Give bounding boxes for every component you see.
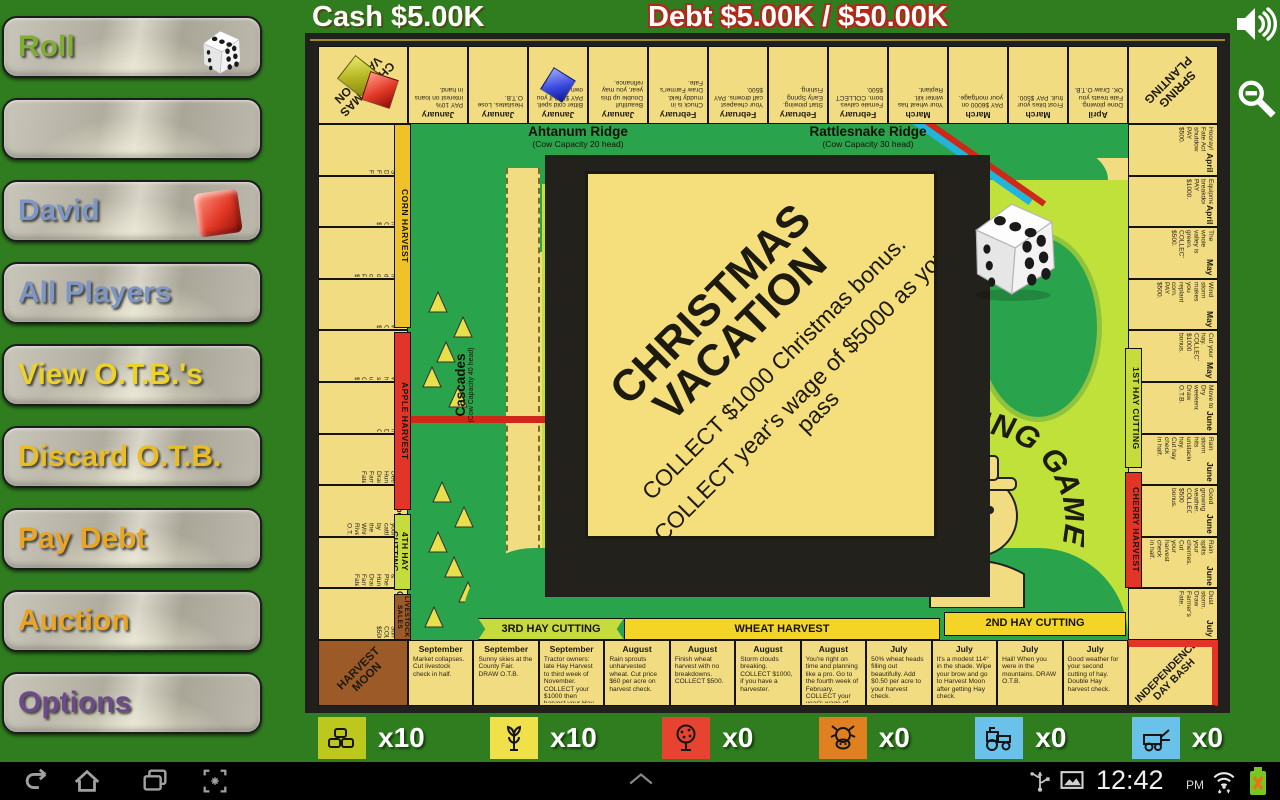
cow-icon: [819, 717, 867, 759]
view-otbs-button-label: View O.T.B.'s: [18, 358, 203, 392]
all-players-button[interactable]: All Players: [2, 262, 262, 324]
fruit-tree-icon: [662, 717, 710, 759]
square-month: May: [1130, 258, 1216, 277]
square-month: September: [411, 643, 470, 655]
board-square: AugustStorm clouds breaking. COLLECT $10…: [735, 640, 800, 706]
hide-bar-chevron[interactable]: [626, 770, 656, 800]
square-desc: Your wheat has winter kill. Replant.: [891, 49, 945, 109]
square-desc: Finish wheat harvest with no breakdowns.…: [673, 655, 732, 703]
square-content: FebruaryFemale calves born. COLLECT $500…: [831, 49, 885, 121]
discard-otb-button-label: Discard O.T.B.: [18, 440, 221, 474]
david-button[interactable]: David: [2, 180, 262, 242]
board-square: JulyGood weather for your second cutting…: [1063, 640, 1128, 706]
counter-count: x0: [879, 722, 910, 754]
square-desc: Move to Dry weekend. Draw O.T.B.: [1130, 384, 1216, 410]
square-desc: You're right on time and planning like a…: [804, 655, 863, 703]
square-month: August: [673, 643, 732, 655]
square-content: FebruaryChuck is in muddy field. Draw Fa…: [651, 49, 705, 121]
square-month: May: [1130, 310, 1216, 329]
2nd-hay-cutting-banner: 2ND HAY CUTTING: [944, 612, 1126, 636]
clock-ampm: PM: [1186, 778, 1204, 792]
square-content: AugustRain sprouts unharvested wheat. Cu…: [607, 643, 666, 703]
view-otbs-button[interactable]: View O.T.B.'s: [2, 344, 262, 406]
square-content: SeptemberSunny skies at the County Fair.…: [476, 643, 535, 703]
square-desc: Hooray! Fate Act shutdown. PAY $500.: [1130, 126, 1216, 152]
square-month: September: [542, 643, 601, 655]
pay-debt-button[interactable]: Pay Debt: [2, 508, 262, 570]
square-content: FebruaryStart plowing. Early Spring Fish…: [771, 49, 825, 121]
square-desc: Storm clouds breaking. COLLECT $1000, if…: [738, 655, 797, 703]
square-content: Rain splits your cherries. Cut your harv…: [1130, 539, 1216, 587]
board-square: JulyHail! When you were in the mountains…: [997, 640, 1062, 706]
hay-bales-icon: [318, 717, 366, 759]
square-content: JulyGood weather for your second cutting…: [1066, 643, 1125, 703]
rolled-die: [948, 183, 1066, 301]
corner-christmas-vacation: CHRISTMASVACATION: [318, 46, 408, 124]
square-month: January: [411, 109, 465, 121]
square-content: MarchFrost bites your fruit. PAY $500.: [1011, 49, 1065, 121]
square-month: June: [1130, 565, 1216, 587]
red-player-piece-icon: [193, 188, 243, 238]
home-button[interactable]: [72, 766, 102, 796]
square-content: FebruaryYour cheapest calf drowns. PAY $…: [711, 49, 765, 121]
square-desc: PAY $6000 on your mortgage.: [951, 49, 1005, 109]
square-desc: Hesitates. Lose O.T.B.: [471, 49, 525, 109]
square-desc: Female calves born. COLLECT $500.: [831, 49, 885, 109]
square-content: Hooray! Fate Act shutdown. PAY $500.Apri…: [1130, 126, 1216, 174]
square-content: JanuaryBeautiful! Double up this year, y…: [591, 49, 645, 121]
corner-harvest-moon: HARVEST MOON: [318, 640, 408, 706]
commodity-counter: x0: [662, 717, 753, 759]
square-content: AprilDone plowing. Fate treats you OK. D…: [1071, 49, 1125, 121]
square-desc: Sunny skies at the County Fair. DRAW O.T…: [476, 655, 535, 703]
square-desc: Chuck is in muddy field. Draw Farmer's F…: [651, 49, 705, 109]
square-month: February: [651, 109, 705, 121]
commodity-counter: x0: [1132, 717, 1223, 759]
square-content: AugustYou're right on time and planning …: [804, 643, 863, 703]
board-square: Equipment breakdown. PAY $1000.April: [1128, 176, 1218, 228]
debt-label: Debt $5.00K / $50.00K: [648, 1, 948, 34]
commodity-counter: x10: [490, 717, 597, 759]
cherry-harvest-banner: CHERRY HARVEST: [1125, 472, 1142, 588]
square-month: January: [471, 109, 525, 121]
board-square: MarchYour wheat has winter kill. Replant…: [888, 46, 948, 124]
square-content: Dust storm. Draw Farmer's Fate.July: [1130, 590, 1216, 638]
counter-count: x0: [722, 722, 753, 754]
square-month: May: [1130, 361, 1216, 380]
square-month: July: [935, 643, 994, 655]
square-content: Wind storm makes you replant corn. PAY $…: [1130, 281, 1216, 329]
3rd-hay-cutting-banner: 3RD HAY CUTTING: [478, 618, 624, 640]
corner-independence-day-bash: INDEPENDENCEDAY BASH: [1128, 640, 1218, 706]
board-square: FebruaryFemale calves born. COLLECT $500…: [828, 46, 888, 124]
square-desc: Market collapses. Cut livestock check in…: [411, 655, 470, 703]
square-desc: Rain storm hits unstacked hay. Cut hay c…: [1130, 436, 1216, 462]
board-square: AugustYou're right on time and planning …: [801, 640, 866, 706]
square-content: SeptemberTractor owners: late Hay Harves…: [542, 643, 601, 703]
square-month: January: [531, 109, 585, 121]
square-content: Equipment breakdown. PAY $1000.April: [1130, 178, 1216, 226]
apple-harvest-banner: APPLE HARVEST: [394, 332, 411, 510]
tractor-icon: [975, 717, 1023, 759]
board-square: MarchPAY $6000 on your mortgage.: [948, 46, 1008, 124]
board-square: FebruaryYour cheapest calf drowns. PAY $…: [708, 46, 768, 124]
square-desc: Good growing weather. COLLECT $500 bonus…: [1130, 487, 1216, 513]
square-desc: Frost bites your fruit. PAY $500.: [1011, 49, 1065, 109]
board-square: SeptemberTractor owners: late Hay Harves…: [539, 640, 604, 706]
square-content: JulyHail! When you were in the mountains…: [1000, 643, 1059, 703]
square-month: February: [771, 109, 825, 121]
corn-harvest-banner: CORN HARVEST: [394, 124, 411, 328]
square-desc: Hail! When you were in the mountains. DR…: [1000, 655, 1059, 703]
square-content: MarchPAY $6000 on your mortgage.: [951, 49, 1005, 121]
commodity-counter: x0: [819, 717, 910, 759]
rattlesnake-ridge-label: Rattlesnake Ridge (Cow Capacity 30 head): [748, 124, 988, 149]
dice-icon: [190, 21, 246, 77]
pay-debt-button-label: Pay Debt: [18, 522, 146, 556]
commodity-counter-bar: x10x10x0x0x0x0: [318, 715, 1223, 760]
cash-label: Cash $5.00K: [312, 1, 485, 34]
board-square: AugustRain sprouts unharvested wheat. Cu…: [604, 640, 669, 706]
4th-hay-cutting-banner: 4TH HAY CUTTING: [394, 514, 411, 590]
square-month: September: [476, 643, 535, 655]
1st-hay-cutting-banner: 1ST HAY CUTTING: [1125, 348, 1142, 468]
clock: 12:42: [1096, 765, 1164, 796]
square-month: February: [711, 109, 765, 121]
square-content: Cut your hay. COLLECT $1000 bonus.May: [1130, 332, 1216, 380]
screenshot-button[interactable]: [200, 766, 230, 796]
square-month: July: [1000, 643, 1059, 655]
board-square: JanuaryBitter cold spell. PAY $500 if yo…: [528, 46, 588, 124]
square-month: July: [1130, 619, 1216, 638]
square-month: March: [951, 109, 1005, 121]
corner-spring-planting: SPRINGPLANTING: [1128, 46, 1218, 124]
android-navbar: 12:42 PM: [0, 762, 1280, 800]
square-month: April: [1130, 204, 1216, 225]
square-content: AugustFinish wheat harvest with no break…: [673, 643, 732, 703]
board-square: SeptemberMarket collapses. Cut livestock…: [408, 640, 473, 706]
harvester-icon: [1132, 717, 1180, 759]
recent-apps-button[interactable]: [140, 766, 170, 796]
square-month: June: [1130, 513, 1216, 535]
square-month: January: [591, 109, 645, 121]
square-content: JanuaryHesitates. Lose O.T.B.: [471, 49, 525, 121]
square-month: April: [1071, 109, 1125, 121]
square-content: Good growing weather. COLLECT $500 bonus…: [1130, 487, 1216, 535]
square-content: JulyIt's a modest 114° in the shade. Wip…: [935, 643, 994, 703]
board-square: AprilDone plowing. Fate treats you OK. D…: [1068, 46, 1128, 124]
square-desc: Tractor owners: late Hay Harvest to thir…: [542, 655, 601, 703]
wifi-status-icon: [1210, 766, 1240, 796]
wheat-harvest-banner: WHEAT HARVEST: [624, 618, 940, 640]
square-content: Move to Dry weekend. Draw O.T.B.June: [1130, 384, 1216, 432]
david-button-label: David: [18, 194, 100, 228]
board-square: July50% wheat heads filling out beautifu…: [866, 640, 931, 706]
roll-button[interactable]: Roll: [2, 16, 262, 78]
roll-button-label: Roll: [18, 30, 75, 64]
board-row-top: JanuaryPAY 10% interest on loans in hand…: [408, 46, 1128, 124]
livestock-sales-banner: LIVESTOCK SALES: [394, 594, 411, 640]
square-desc: Beautiful! Double up this year, you may …: [591, 49, 645, 109]
square-desc: Dust storm. Draw Farmer's Fate.: [1130, 590, 1216, 619]
board-square: MarchFrost bites your fruit. PAY $500.: [1008, 46, 1068, 124]
square-desc: Good weather for your second cutting of …: [1066, 655, 1125, 703]
square-month: June: [1130, 410, 1216, 432]
square-content: The whole valley is green. COLLECT $500.…: [1130, 229, 1216, 277]
counter-count: x0: [1192, 722, 1223, 754]
board-row-bottom: SeptemberMarket collapses. Cut livestock…: [408, 640, 1128, 706]
options-button[interactable]: Options: [2, 672, 262, 734]
board-square: Dust storm. Draw Farmer's Fate.July: [1128, 588, 1218, 640]
cascades-label: Cascades (Cow Capacity 40 head): [453, 325, 475, 445]
square-desc: Rain sprouts unharvested wheat. Cut pric…: [607, 655, 666, 703]
zoom-out-icon[interactable]: [1236, 78, 1278, 120]
square-month: August: [738, 643, 797, 655]
discard-otb-button[interactable]: Discard O.T.B.: [2, 426, 262, 488]
counter-count: x10: [550, 722, 597, 754]
usb-status-icon: [1026, 766, 1056, 796]
square-month: March: [891, 109, 945, 121]
square-desc: Done plowing. Fate treats you OK. Draw O…: [1071, 49, 1125, 109]
square-month: August: [607, 643, 666, 655]
square-content: MarchYour wheat has winter kill. Replant…: [891, 49, 945, 121]
board-square: JanuaryHesitates. Lose O.T.B.: [468, 46, 528, 124]
square-month: April: [1130, 152, 1216, 173]
board-square: AugustFinish wheat harvest with no break…: [670, 640, 735, 706]
game-screen: Cash $5.00K Debt $5.00K / $50.00K Roll D…: [0, 0, 1280, 800]
square-content: July50% wheat heads filling out beautifu…: [869, 643, 928, 703]
square-desc: Start plowing. Early Spring Fishing.: [771, 49, 825, 109]
card-overlay[interactable]: CHRISTMASVACATION COLLECT $1000 Christma…: [545, 155, 990, 597]
square-month: July: [869, 643, 928, 655]
board-square: JulyIt's a modest 114° in the shade. Wip…: [932, 640, 997, 706]
square-content: Rain storm hits unstacked hay. Cut hay c…: [1130, 436, 1216, 484]
square-month: August: [804, 643, 863, 655]
square-desc: Your cheapest calf drowns. PAY $500.: [711, 49, 765, 109]
square-content: JanuaryPAY 10% interest on loans in hand…: [411, 49, 465, 121]
square-desc: 50% wheat heads filling out beautifully.…: [869, 655, 928, 703]
board-square: The whole valley is green. COLLECT $500.…: [1128, 227, 1218, 279]
square-content: SeptemberMarket collapses. Cut livestock…: [411, 643, 470, 703]
commodity-counter: x0: [975, 717, 1066, 759]
square-desc: Wind storm makes you replant corn. PAY $…: [1130, 281, 1216, 310]
square-content: AugustStorm clouds breaking. COLLECT $10…: [738, 643, 797, 703]
board-square: JanuaryPAY 10% interest on loans in hand…: [408, 46, 468, 124]
counter-count: x0: [1035, 722, 1066, 754]
all-players-button-label: All Players: [18, 276, 171, 310]
options-button-label: Options: [18, 686, 131, 720]
board-square: FebruaryChuck is in muddy field. Draw Fa…: [648, 46, 708, 124]
auction-button[interactable]: Auction: [2, 590, 262, 652]
square-month: February: [831, 109, 885, 121]
wheat-sheaf-icon: [490, 717, 538, 759]
square-desc: The whole valley is green. COLLECT $500.: [1130, 229, 1216, 258]
ahtanum-ridge-label: Ahtanum Ridge (Cow Capacity 20 head): [428, 124, 728, 149]
board-square: FebruaryStart plowing. Early Spring Fish…: [768, 46, 828, 124]
battery-status-icon: [1246, 765, 1276, 795]
auction-button-label: Auction: [18, 604, 130, 638]
volume-icon[interactable]: [1234, 4, 1278, 44]
square-desc: It's a modest 114° in the shade. Wipe yo…: [935, 655, 994, 703]
farmers-fate-card: CHRISTMASVACATION COLLECT $1000 Christma…: [585, 171, 937, 539]
counter-count: x10: [378, 722, 425, 754]
commodity-counter: x10: [318, 717, 425, 759]
square-month: June: [1130, 461, 1216, 483]
square-desc: Cut your hay. COLLECT $1000 bonus.: [1130, 332, 1216, 361]
square-desc: Equipment breakdown. PAY $1000.: [1130, 178, 1216, 204]
board-square: JanuaryBeautiful! Double up this year, y…: [588, 46, 648, 124]
back-button[interactable]: [22, 766, 52, 796]
square-desc: Rain splits your cherries. Cut your harv…: [1130, 539, 1216, 565]
board-square: SeptemberSunny skies at the County Fair.…: [473, 640, 538, 706]
board-square: Wind storm makes you replant corn. PAY $…: [1128, 279, 1218, 331]
square-desc: PAY 10% interest on loans in hand.: [411, 49, 465, 109]
square-month: July: [1066, 643, 1125, 655]
square-month: March: [1011, 109, 1065, 121]
board-square: Hooray! Fate Act shutdown. PAY $500.Apri…: [1128, 124, 1218, 176]
image-status-icon: [1058, 766, 1088, 796]
blank-button[interactable]: [2, 98, 262, 160]
